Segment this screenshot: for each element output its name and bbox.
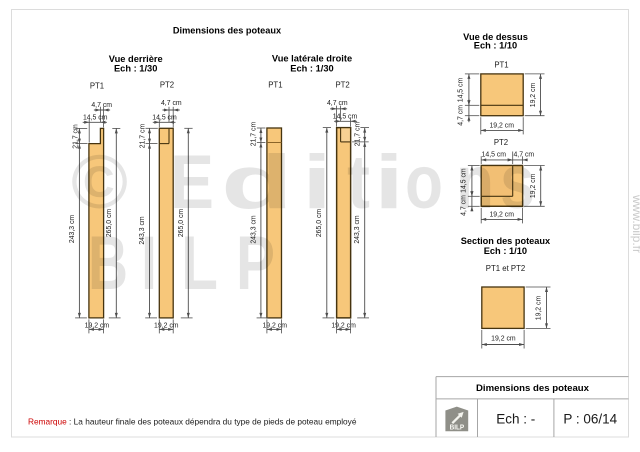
svg-text:t: t <box>347 140 370 225</box>
svg-text:n: n <box>456 140 494 225</box>
svg-text:PT1: PT1 <box>268 81 282 90</box>
svg-text:Ech : -: Ech : - <box>496 411 535 426</box>
svg-text:PT1: PT1 <box>494 61 508 70</box>
svg-text:o: o <box>405 140 443 225</box>
svg-text:P: P <box>236 221 275 306</box>
svg-text:L: L <box>181 221 218 306</box>
svg-text:19,2 cm: 19,2 cm <box>535 295 542 320</box>
svg-text:14,5 cm: 14,5 cm <box>457 77 464 102</box>
svg-text:Dimensions des poteaux: Dimensions des poteaux <box>173 26 282 36</box>
svg-text:14,5 cm: 14,5 cm <box>333 114 358 121</box>
svg-text:P : 06/14: P : 06/14 <box>563 411 617 426</box>
svg-text:B: B <box>88 221 128 306</box>
svg-text:19,2 cm: 19,2 cm <box>154 322 179 329</box>
svg-text:E: E <box>170 140 214 225</box>
svg-text:19,2 cm: 19,2 cm <box>489 123 514 130</box>
svg-text:©: © <box>71 140 128 225</box>
svg-text:BILP: BILP <box>450 422 465 431</box>
svg-text:I: I <box>141 221 157 306</box>
svg-text:19,2 cm: 19,2 cm <box>530 82 537 107</box>
svg-text:d: d <box>221 140 293 225</box>
svg-text:PT1: PT1 <box>90 82 104 91</box>
svg-text:i: i <box>302 140 332 225</box>
svg-text:21,7 cm: 21,7 cm <box>139 123 146 148</box>
svg-text:Ech : 1/10: Ech : 1/10 <box>474 41 517 51</box>
svg-text:19,2 cm: 19,2 cm <box>85 322 110 329</box>
svg-text:Remarque : La hauteur finale d: Remarque : La hauteur finale des poteaux… <box>28 417 357 427</box>
svg-text:19,2 cm: 19,2 cm <box>331 322 356 329</box>
svg-text:PT2: PT2 <box>335 81 349 90</box>
svg-text:Dimensions des poteaux: Dimensions des poteaux <box>476 383 590 394</box>
svg-text:Vue derrière: Vue derrière <box>109 54 163 64</box>
svg-text:19,2 cm: 19,2 cm <box>262 322 287 329</box>
svg-text:14,5 cm: 14,5 cm <box>83 115 108 122</box>
svg-text:19,2 cm: 19,2 cm <box>491 335 516 342</box>
svg-text:4,7 cm: 4,7 cm <box>457 105 464 126</box>
svg-text:4,7 cm: 4,7 cm <box>161 100 182 107</box>
svg-text:s: s <box>500 140 535 225</box>
svg-text:i: i <box>374 140 404 225</box>
svg-text:4,7 cm: 4,7 cm <box>327 100 348 107</box>
svg-text:Section des poteaux: Section des poteaux <box>461 236 551 246</box>
svg-text:14,5 cm: 14,5 cm <box>152 115 177 122</box>
svg-text:Ech : 1/30: Ech : 1/30 <box>290 64 333 74</box>
svg-text:4,7 cm: 4,7 cm <box>91 102 112 109</box>
svg-text:PT1 et PT2: PT1 et PT2 <box>486 264 525 273</box>
svg-text:Ech : 1/10: Ech : 1/10 <box>484 246 527 256</box>
svg-text:www.bilp.fr: www.bilp.fr <box>630 194 640 253</box>
svg-text:PT2: PT2 <box>160 81 174 90</box>
svg-text:Vue latérale droite: Vue latérale droite <box>272 54 352 64</box>
svg-text:Ech : 1/30: Ech : 1/30 <box>114 64 157 74</box>
